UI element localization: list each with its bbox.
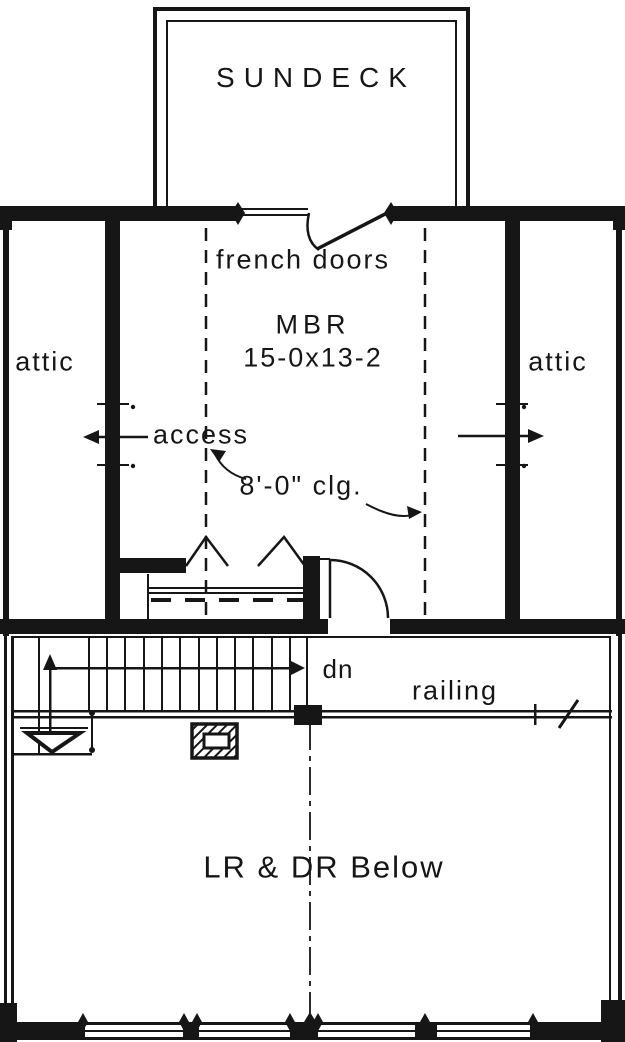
open-to-below-label: LR & DR Below	[203, 852, 444, 883]
sundeck-walls	[153, 7, 470, 207]
stair-treads	[38, 637, 308, 754]
top-wall	[0, 202, 625, 230]
access-label: access	[153, 422, 249, 449]
floor-plan-linework	[0, 0, 625, 1042]
stairs-down-label: dn	[323, 656, 354, 682]
chimney	[192, 724, 237, 758]
access-arrow-right	[458, 429, 544, 443]
attic-right-label: attic	[528, 349, 588, 376]
attic-left-label: attic	[15, 349, 75, 376]
down-arrowhead	[27, 733, 80, 752]
sundeck-label: SUNDECK	[216, 64, 416, 92]
mbr-bottom-wall	[0, 556, 625, 638]
newel-post	[294, 705, 322, 725]
closet	[118, 537, 305, 619]
mbr-door-swing	[320, 558, 388, 618]
floor-plan: SUNDECK french doors MBR 15-0x13-2 attic…	[0, 0, 625, 1042]
ceiling-height-label: 8'-0" clg.	[239, 473, 362, 500]
bifold-door-right	[258, 537, 305, 566]
mbr-dimensions: 15-0x13-2	[243, 345, 383, 372]
bottom-wall	[0, 1012, 625, 1040]
mbr-label: MBR	[276, 312, 351, 339]
railing-line	[13, 700, 612, 728]
french-doors-label: french doors	[216, 247, 390, 274]
railing-label: railing	[412, 678, 498, 705]
